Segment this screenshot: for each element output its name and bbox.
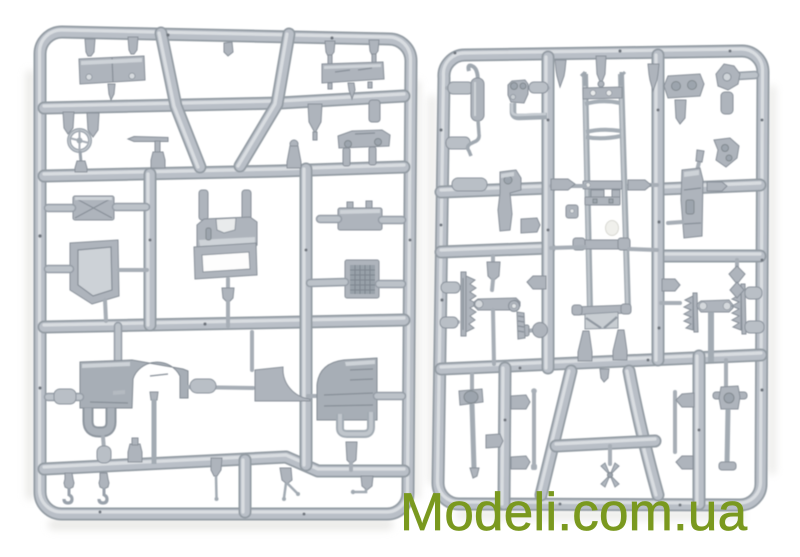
svg-text:Modeli.com.ua: Modeli.com.ua — [400, 483, 748, 542]
